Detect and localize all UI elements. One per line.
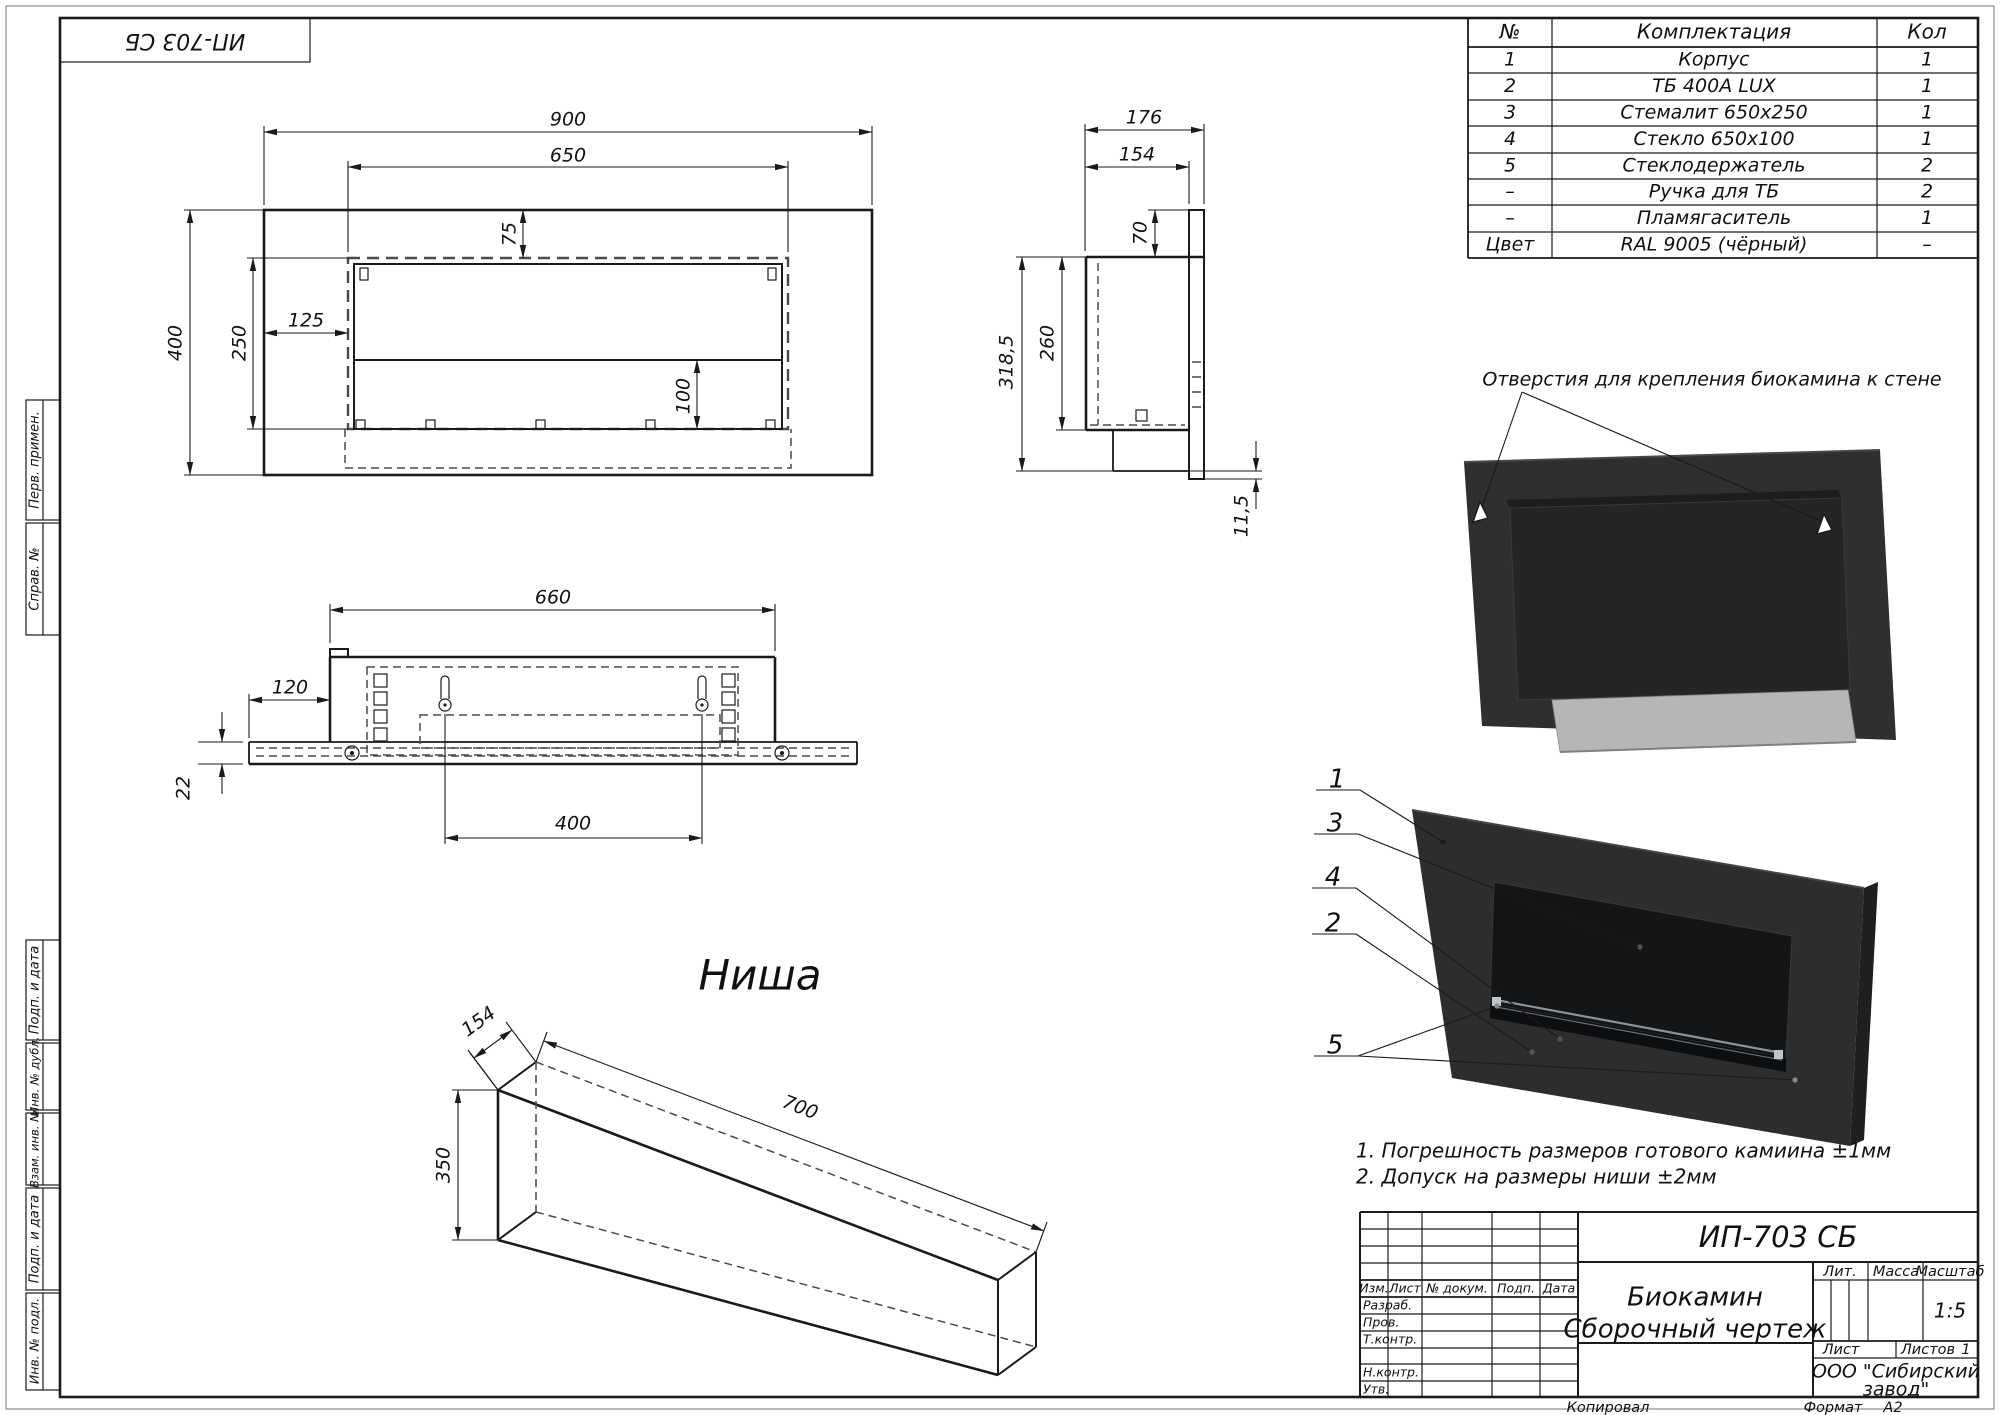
company-line-2: завод" <box>1863 1379 1929 1401</box>
label-lit: Лит. <box>1822 1264 1856 1280</box>
dim-250: 250 <box>229 325 251 361</box>
cell: 1 <box>1921 102 1933 124</box>
cell: Пламягаситель <box>1637 207 1791 229</box>
niche-view: Ниша 154 700 350 <box>433 951 1048 1376</box>
cell: 1 <box>1921 75 1933 97</box>
parts-header-name: Комплектация <box>1637 20 1791 44</box>
dim-318-5: 318,5 <box>996 335 1018 389</box>
dim-120: 120 <box>272 677 308 699</box>
parts-header-qty: Кол <box>1907 20 1946 44</box>
parts-header-no: № <box>1499 20 1521 44</box>
doc-type: Сборочный чертеж <box>1564 1315 1828 1345</box>
label-podp: Подп. <box>1497 1281 1535 1296</box>
label-prov: Пров. <box>1363 1315 1399 1330</box>
dim-400-height: 400 <box>165 325 187 361</box>
label-izm: Изм. <box>1359 1281 1388 1296</box>
dim-350: 350 <box>433 1147 455 1183</box>
cell: 4 <box>1504 128 1516 150</box>
label-data: Дата <box>1542 1281 1575 1296</box>
dim-650: 650 <box>550 145 586 167</box>
niche-title: Ниша <box>698 951 821 1000</box>
dim-154-side: 154 <box>1119 144 1155 166</box>
dim-176: 176 <box>1126 107 1162 129</box>
cell: Ручка для ТБ <box>1649 181 1779 203</box>
glass-holder-right <box>1774 1050 1783 1059</box>
front-view: 900 650 75 125 400 250 100 <box>165 109 873 476</box>
product-name: Биокамин <box>1627 1283 1763 1313</box>
label-utv: Утв. <box>1363 1382 1389 1397</box>
dim-700: 700 <box>779 1091 821 1125</box>
cell: 1 <box>1921 207 1933 229</box>
dim-11-5: 11,5 <box>1231 495 1253 537</box>
technical-notes: 1. Погрешность размеров готового камиина… <box>1356 1139 1891 1189</box>
cell: 5 <box>1504 155 1516 177</box>
dim-125: 125 <box>288 310 324 332</box>
mounting-holes-label: Отверстия для крепления биокамина к стен… <box>1482 369 1941 391</box>
cell: Цвет <box>1486 234 1536 256</box>
cell: – <box>1505 181 1515 203</box>
cell: 2 <box>1504 75 1516 97</box>
margin-label-podp-data-1: Подп. и дата <box>28 946 43 1035</box>
render-front-view: 1 3 4 2 5 <box>1312 765 1878 1147</box>
label-listov: Листов <box>1900 1342 1955 1358</box>
format-value: А2 <box>1882 1400 1902 1415</box>
dim-660: 660 <box>535 587 571 609</box>
label-n-kontr: Н.контр. <box>1363 1365 1419 1380</box>
parts-table: № Комплектация Кол 1 Корпус 1 2 ТБ 400А … <box>1468 18 1978 258</box>
dim-100: 100 <box>673 378 695 414</box>
cell: RAL 9005 (чёрный) <box>1621 234 1808 256</box>
render-back-view: Отверстия для крепления биокамина к стен… <box>1464 369 1942 753</box>
cell: 2 <box>1921 155 1933 177</box>
drawing-sheet: ИП-703 СБ Перв. примен. Справ. № Подп. и… <box>0 0 2000 1415</box>
cell: – <box>1922 234 1932 256</box>
label-list-col: Лист <box>1388 1281 1421 1296</box>
cell: Стеклодержатель <box>1622 155 1805 177</box>
cell: 1 <box>1504 49 1516 71</box>
dim-70: 70 <box>1130 221 1152 245</box>
margin-label-perv-primen: Перв. примен. <box>28 411 43 509</box>
note-1: 1. Погрешность размеров готового камиина… <box>1356 1139 1891 1163</box>
dim-154-niche: 154 <box>458 1002 500 1041</box>
cell: ТБ 400А LUX <box>1652 75 1776 97</box>
cell: – <box>1505 207 1515 229</box>
top-view: 660 120 22 400 <box>173 587 858 845</box>
label-list: Лист <box>1822 1342 1860 1358</box>
label-masshtab: Масштаб <box>1916 1264 1985 1280</box>
copied-label: Копировал <box>1567 1400 1650 1415</box>
format-label: Формат <box>1804 1400 1863 1415</box>
note-2: 2. Допуск на размеры ниши ±2мм <box>1356 1165 1717 1189</box>
dim-260: 260 <box>1037 325 1059 361</box>
sheets-value: 1 <box>1961 1342 1970 1358</box>
margin-label-sprav-no: Справ. № <box>28 547 43 610</box>
cell: 2 <box>1921 181 1933 203</box>
margin-label-inv-podl: Инв. № подл. <box>27 1298 42 1384</box>
left-margin-column: Перв. примен. Справ. № Подп. и дата Инв.… <box>26 400 60 1390</box>
margin-label-podp-data-2: Подп. и дата <box>28 1195 43 1284</box>
dim-22: 22 <box>173 776 195 800</box>
label-razrab: Разраб. <box>1363 1298 1412 1313</box>
margin-label-inv-dubl: Инв. № дубл. <box>28 1037 42 1116</box>
cell: 1 <box>1921 49 1933 71</box>
side-view: 176 154 70 260 318,5 11,5 <box>996 107 1263 538</box>
label-t-kontr: Т.контр. <box>1363 1332 1417 1347</box>
cell: 1 <box>1921 128 1933 150</box>
top-left-stamp: ИП-703 СБ <box>125 28 245 53</box>
cell: Корпус <box>1678 49 1750 71</box>
cell: 3 <box>1504 102 1516 124</box>
title-block: ИП-703 СБ Биокамин Сборочный чертеж Лит.… <box>1359 1212 1984 1415</box>
cell: Стемалит 650х250 <box>1620 102 1807 124</box>
margin-label-vzam-inv: Взам. инв. № <box>28 1110 42 1188</box>
dim-400-mount: 400 <box>555 813 591 835</box>
scale-value: 1:5 <box>1934 1299 1966 1323</box>
doc-number: ИП-703 СБ <box>1699 1220 1858 1254</box>
label-massa: Масса <box>1873 1264 1919 1280</box>
dim-900: 900 <box>550 109 586 131</box>
parts-table-rows: 1 Корпус 1 2 ТБ 400А LUX 1 3 Стемалит 65… <box>1486 49 1933 256</box>
dim-75: 75 <box>499 222 521 246</box>
cell: Стекло 650х100 <box>1633 128 1794 150</box>
label-n-dokum: № докум. <box>1425 1281 1488 1296</box>
